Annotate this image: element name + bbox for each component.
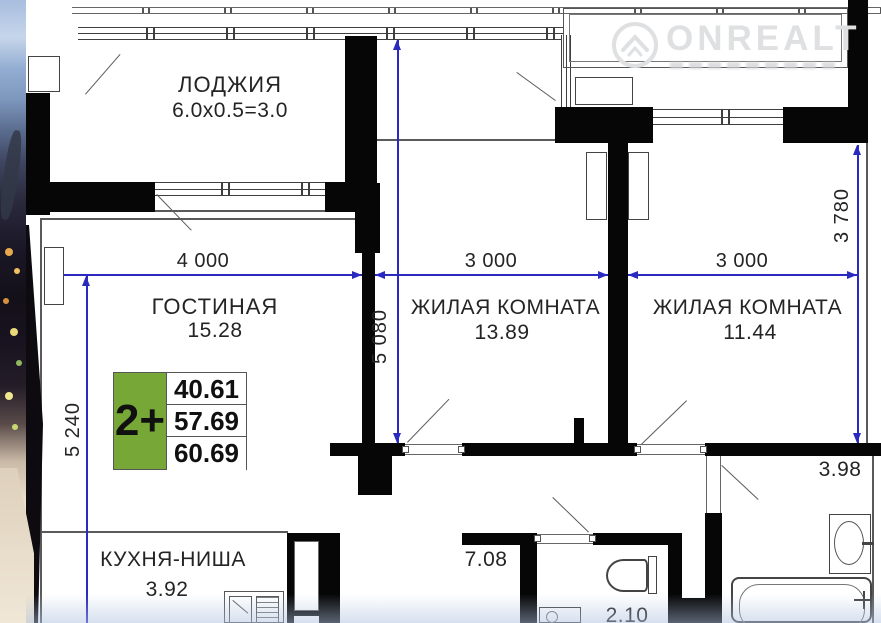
dim-label-top-3: 3 000 — [692, 250, 792, 273]
bath-sink-tap-icon — [862, 542, 874, 545]
bokeh-light — [3, 298, 9, 304]
door-swing — [721, 465, 758, 500]
dimension-arrow — [628, 271, 638, 279]
wall-line — [377, 139, 559, 141]
bokeh-light — [10, 328, 18, 336]
kitchen-drainboard-icon — [256, 596, 279, 623]
room-area-bedroom1: 13.89 — [452, 321, 552, 345]
door-swing — [156, 194, 191, 231]
wall-segment — [355, 183, 380, 253]
radiator-icon — [586, 152, 607, 220]
door-threshold — [534, 535, 541, 542]
wall-segment — [25, 93, 50, 215]
wall-segment — [358, 455, 392, 495]
door-threshold — [458, 446, 465, 453]
door-swing — [85, 54, 121, 95]
wall-segment — [783, 107, 848, 143]
bokeh-light — [5, 392, 13, 400]
room-area-bathroom: 3.98 — [800, 458, 880, 482]
wall-segment — [462, 443, 637, 456]
wall-line — [866, 143, 868, 443]
bokeh-light — [12, 424, 18, 430]
door-swing — [407, 399, 449, 443]
dim-label-right: 3 780 — [831, 169, 855, 261]
room-area-bedroom2: 11.44 — [700, 321, 800, 345]
dim-label-top-2: 3 000 — [441, 250, 541, 273]
bokeh-light — [14, 268, 20, 274]
wall-segment — [520, 533, 537, 623]
door-opening — [537, 534, 593, 544]
dim-label-left: 5 240 — [62, 383, 86, 475]
vent-unit-icon — [575, 77, 633, 105]
dimension-arrow — [393, 40, 401, 50]
bath-sink-basin-icon — [834, 521, 864, 565]
photo-detail — [0, 129, 24, 220]
bokeh-light — [16, 360, 22, 366]
wall-segment — [555, 107, 653, 143]
room-label-living: ГОСТИНАЯ — [105, 294, 325, 320]
wall-segment — [682, 598, 722, 623]
bathtub-tap-icon — [863, 591, 865, 609]
dimension-arrow — [393, 433, 401, 443]
toilet-icon — [606, 559, 648, 592]
dimension-arrow — [598, 271, 608, 279]
window-band — [78, 27, 563, 40]
shaft-niche — [294, 616, 319, 623]
floor-plan: 4 000 3 000 3 000 5 240 5 080 3 780 ЛОДЖ… — [0, 0, 881, 623]
window-icon — [28, 56, 60, 92]
dimension-arrow — [853, 433, 861, 443]
washer-door-icon — [546, 611, 558, 623]
wall-segment — [50, 182, 155, 212]
room-area-hallway: 7.08 — [446, 548, 526, 572]
bokeh-light — [5, 248, 13, 256]
dimension-arrow — [375, 271, 385, 279]
dimension-arrow — [352, 271, 362, 279]
wall-segment — [325, 182, 347, 212]
dimension-arrow — [847, 271, 857, 279]
area-badge: 2+ 40.61 57.69 60.69 — [113, 372, 247, 470]
dimension-arrow — [82, 276, 90, 286]
door-swing — [516, 72, 555, 101]
radiator-icon — [44, 247, 64, 305]
wall-segment — [574, 418, 584, 445]
room-dims-loggia: 6.0x0.5=3.0 — [130, 99, 330, 123]
wall-segment — [705, 443, 881, 456]
wall-segment — [462, 533, 520, 545]
window-band — [653, 109, 783, 125]
window-band — [153, 182, 325, 196]
badge-area-3: 60.69 — [166, 437, 246, 470]
toilet-tank-icon — [648, 556, 657, 594]
shaft-niche — [294, 541, 319, 611]
badge-area-2: 57.69 — [166, 405, 246, 437]
badge-room-type: 2+ — [114, 373, 166, 469]
door-swing — [641, 400, 687, 444]
door-threshold — [634, 446, 641, 453]
room-area-kitchen: 3.92 — [117, 578, 217, 602]
door-opening — [637, 444, 705, 455]
bathtub-inner-icon — [739, 584, 865, 623]
wall-line — [40, 218, 362, 220]
room-label-kitchen: КУХНЯ-НИША — [83, 548, 263, 572]
wall-segment — [668, 533, 682, 623]
badge-area-1: 40.61 — [166, 373, 246, 405]
wall-segment — [608, 143, 628, 447]
door-opening — [706, 456, 721, 513]
wall-segment — [848, 0, 868, 143]
dimension-arrow — [853, 145, 861, 155]
zone-divider-line — [40, 531, 288, 533]
radiator-icon — [628, 152, 649, 220]
dimension-line — [397, 40, 399, 447]
door-threshold — [700, 446, 707, 453]
room-label-bedroom1: ЖИЛАЯ КОМНАТА — [383, 296, 628, 320]
door-threshold — [402, 446, 409, 453]
room-label-bedroom2: ЖИЛАЯ КОМНАТА — [625, 296, 870, 320]
door-swing — [552, 497, 589, 532]
dim-label-top-1: 4 000 — [153, 250, 253, 273]
terrace-outline-inner — [569, 14, 842, 62]
room-area-living: 15.28 — [165, 319, 265, 343]
door-threshold — [589, 535, 596, 542]
wall-segment — [593, 533, 668, 545]
room-area-toilet: 2.10 — [587, 604, 667, 623]
room-label-loggia: ЛОДЖИЯ — [120, 72, 340, 98]
door-opening — [405, 444, 462, 455]
dimension-line — [45, 274, 857, 276]
